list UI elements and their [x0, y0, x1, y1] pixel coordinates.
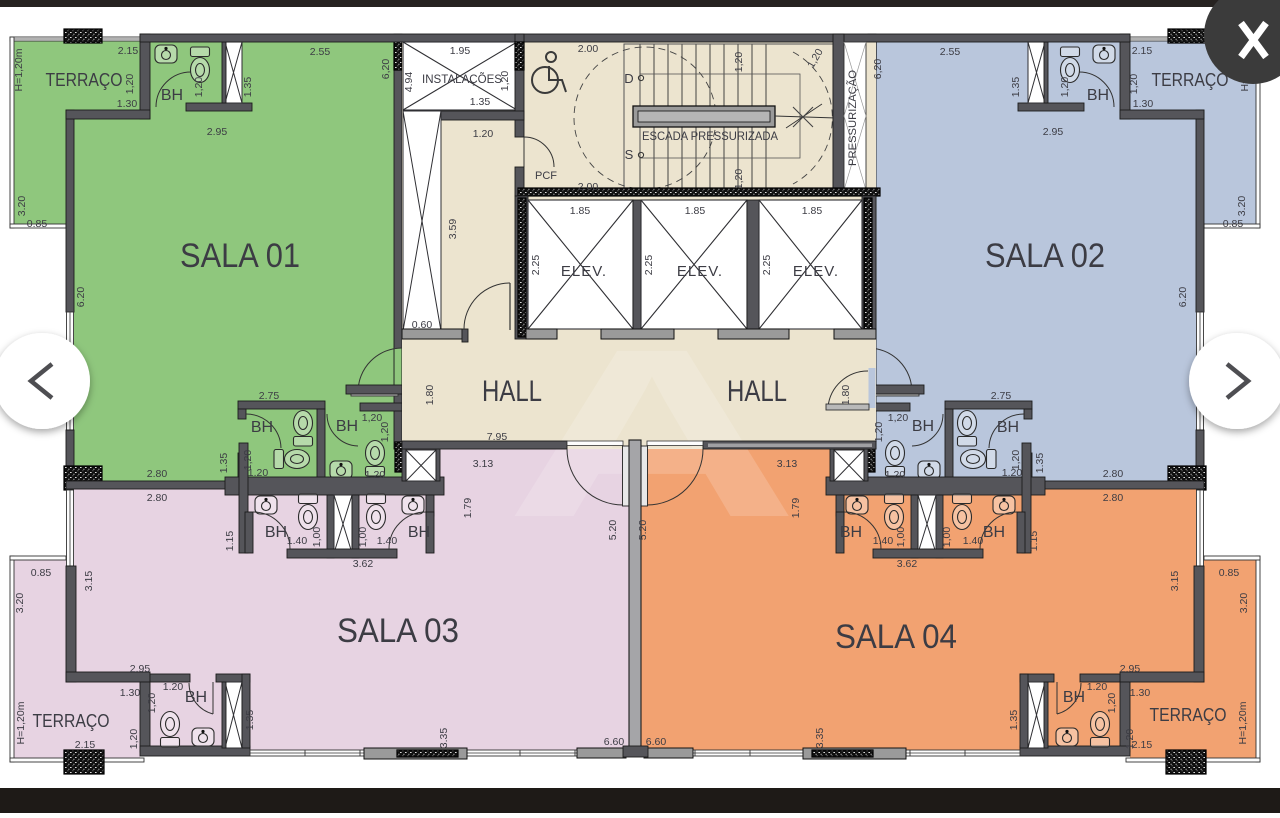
svg-text:1.40: 1.40 — [287, 535, 308, 547]
svg-text:1.79: 1.79 — [790, 498, 802, 519]
svg-text:1.40: 1.40 — [377, 535, 398, 547]
svg-text:3.13: 3.13 — [777, 458, 798, 470]
svg-text:5.20: 5.20 — [637, 520, 649, 541]
svg-text:3.35: 3.35 — [438, 728, 450, 749]
svg-text:2.55: 2.55 — [940, 46, 961, 58]
svg-text:1,20: 1,20 — [733, 52, 745, 73]
svg-text:2.95: 2.95 — [1120, 663, 1141, 675]
svg-text:1,00: 1,00 — [895, 527, 907, 548]
svg-text:1.35: 1.35 — [1034, 453, 1046, 474]
svg-text:1,20: 1,20 — [379, 422, 391, 443]
svg-text:BH: BH — [265, 524, 287, 541]
svg-text:1.20: 1.20 — [1087, 681, 1108, 693]
svg-text:2.15: 2.15 — [118, 45, 139, 57]
svg-text:SALA 01: SALA 01 — [180, 237, 300, 275]
svg-text:1.35: 1.35 — [1010, 77, 1022, 98]
svg-text:1,00: 1,00 — [311, 527, 323, 548]
svg-text:3.13: 3.13 — [473, 458, 494, 470]
svg-text:3.62: 3.62 — [897, 558, 918, 570]
svg-text:1.79: 1.79 — [462, 498, 474, 519]
svg-text:1.20: 1.20 — [163, 681, 184, 693]
svg-text:2.15: 2.15 — [1132, 739, 1153, 751]
svg-text:6.60: 6.60 — [604, 736, 625, 748]
svg-text:1,20: 1,20 — [499, 71, 511, 92]
svg-text:6.60: 6.60 — [646, 736, 667, 748]
svg-text:1,00: 1,00 — [357, 527, 369, 548]
svg-text:1.80: 1.80 — [840, 385, 852, 406]
svg-text:BH: BH — [185, 689, 207, 706]
svg-text:2.95: 2.95 — [207, 126, 228, 138]
svg-text:1.30: 1.30 — [1133, 98, 1154, 110]
svg-text:1.35: 1.35 — [1008, 710, 1020, 731]
svg-text:BH: BH — [997, 419, 1019, 436]
svg-text:1,20: 1,20 — [1106, 693, 1118, 714]
svg-text:1.95: 1.95 — [450, 45, 471, 57]
svg-text:TERRAÇO: TERRAÇO — [33, 711, 110, 731]
svg-text:H=1,20m: H=1,20m — [1237, 701, 1249, 744]
svg-text:4.94: 4.94 — [403, 72, 415, 93]
svg-text:1.30: 1.30 — [1130, 687, 1151, 699]
svg-text:2.25: 2.25 — [530, 255, 542, 276]
svg-text:TERRAÇO: TERRAÇO — [46, 70, 123, 90]
svg-text:BH: BH — [1063, 689, 1085, 706]
svg-text:1,00: 1,00 — [941, 527, 953, 548]
svg-text:6.20: 6.20 — [1177, 287, 1189, 308]
svg-text:5.20: 5.20 — [607, 520, 619, 541]
svg-text:TERRAÇO: TERRAÇO — [1152, 70, 1229, 90]
svg-text:BH: BH — [161, 87, 183, 104]
svg-text:6,20: 6,20 — [872, 59, 884, 80]
svg-text:3.20: 3.20 — [14, 593, 26, 614]
svg-text:ESCADA PRESSURIZADA: ESCADA PRESSURIZADA — [642, 131, 778, 143]
svg-text:3.15: 3.15 — [83, 571, 95, 592]
svg-text:1.35: 1.35 — [470, 96, 491, 108]
svg-text:TERRAÇO: TERRAÇO — [1150, 705, 1227, 725]
svg-text:0.60: 0.60 — [412, 319, 433, 331]
svg-text:2.75: 2.75 — [991, 390, 1012, 402]
svg-text:2.00: 2.00 — [578, 43, 599, 55]
svg-text:INSTALAÇÕES: INSTALAÇÕES — [422, 73, 502, 86]
svg-text:2.00: 2.00 — [578, 181, 599, 193]
svg-text:ELEV.: ELEV. — [561, 263, 607, 280]
svg-text:0.85: 0.85 — [27, 218, 48, 230]
svg-text:ELEV.: ELEV. — [677, 263, 723, 280]
svg-text:2.80: 2.80 — [147, 492, 168, 504]
svg-text:1,20: 1,20 — [1059, 77, 1071, 98]
svg-text:3.20: 3.20 — [1238, 593, 1250, 614]
svg-text:1.40: 1.40 — [963, 535, 984, 547]
svg-text:2.95: 2.95 — [1043, 126, 1064, 138]
svg-text:1.35: 1.35 — [244, 710, 256, 731]
svg-text:6.20: 6.20 — [75, 287, 87, 308]
svg-text:1.20: 1.20 — [248, 467, 269, 479]
svg-text:HALL: HALL — [727, 375, 787, 408]
svg-text:SALA 04: SALA 04 — [835, 618, 957, 656]
svg-text:1.20: 1.20 — [885, 469, 906, 481]
svg-text:1.40: 1.40 — [873, 535, 894, 547]
svg-text:3.20: 3.20 — [16, 196, 28, 217]
svg-text:1.30: 1.30 — [117, 98, 138, 110]
svg-text:1.15: 1.15 — [224, 531, 236, 552]
svg-text:2.80: 2.80 — [1103, 492, 1124, 504]
svg-text:1,20: 1,20 — [1128, 74, 1140, 95]
svg-text:SALA 02: SALA 02 — [985, 237, 1105, 275]
svg-text:1.20: 1.20 — [473, 128, 494, 140]
svg-text:2.95: 2.95 — [130, 663, 151, 675]
svg-text:1.85: 1.85 — [802, 205, 823, 217]
svg-text:2.55: 2.55 — [310, 46, 331, 58]
svg-text:1.35: 1.35 — [218, 453, 230, 474]
svg-text:PCF: PCF — [535, 170, 557, 182]
svg-text:1.20: 1.20 — [1002, 467, 1023, 479]
svg-text:BH: BH — [408, 524, 430, 541]
svg-text:1,20: 1,20 — [124, 74, 136, 95]
svg-text:H=1,20m: H=1,20m — [15, 701, 27, 744]
svg-text:1.20: 1.20 — [365, 469, 386, 481]
svg-text:1,20: 1,20 — [888, 412, 909, 424]
svg-text:BH: BH — [983, 524, 1005, 541]
svg-text:2.80: 2.80 — [1103, 468, 1124, 480]
svg-text:HALL: HALL — [482, 375, 542, 408]
svg-text:H=1,20m: H=1,20m — [13, 48, 25, 91]
svg-text:1,20: 1,20 — [128, 729, 140, 750]
svg-text:3.62: 3.62 — [353, 558, 374, 570]
svg-text:PRESSURIZAÇÃO: PRESSURIZAÇÃO — [846, 70, 859, 166]
svg-text:ELEV.: ELEV. — [793, 263, 839, 280]
svg-text:0.85: 0.85 — [1219, 567, 1240, 579]
svg-text:1,20: 1,20 — [873, 422, 885, 443]
svg-text:1.35: 1.35 — [242, 77, 254, 98]
svg-text:BH: BH — [912, 418, 934, 435]
svg-text:3.15: 3.15 — [1169, 571, 1181, 592]
svg-text:0.85: 0.85 — [1223, 218, 1244, 230]
svg-text:1.15: 1.15 — [1028, 531, 1040, 552]
svg-text:2.25: 2.25 — [761, 255, 773, 276]
svg-text:SALA 03: SALA 03 — [337, 612, 459, 650]
svg-text:2.80: 2.80 — [147, 468, 168, 480]
svg-text:BH: BH — [336, 418, 358, 435]
svg-text:6,20: 6,20 — [380, 59, 392, 80]
svg-text:D: D — [624, 71, 633, 86]
svg-text:1.30: 1.30 — [120, 687, 141, 699]
svg-text:BH: BH — [251, 419, 273, 436]
svg-text:S: S — [625, 147, 634, 162]
svg-text:3.59: 3.59 — [447, 219, 459, 240]
svg-text:1,20: 1,20 — [193, 77, 205, 98]
svg-text:2.15: 2.15 — [75, 739, 96, 751]
svg-text:1,20: 1,20 — [146, 693, 158, 714]
svg-text:1.85: 1.85 — [685, 205, 706, 217]
svg-text:1.85: 1.85 — [570, 205, 591, 217]
svg-text:7.95: 7.95 — [487, 431, 508, 443]
svg-text:2.15: 2.15 — [1132, 45, 1153, 57]
svg-text:1.80: 1.80 — [424, 385, 436, 406]
svg-text:BH: BH — [840, 524, 862, 541]
svg-text:BH: BH — [1087, 87, 1109, 104]
svg-text:1,20: 1,20 — [733, 169, 745, 190]
svg-text:3.35: 3.35 — [814, 728, 826, 749]
svg-text:2.25: 2.25 — [643, 255, 655, 276]
svg-text:0.85: 0.85 — [31, 567, 52, 579]
svg-text:3.20: 3.20 — [1236, 196, 1248, 217]
svg-text:2.75: 2.75 — [259, 390, 280, 402]
